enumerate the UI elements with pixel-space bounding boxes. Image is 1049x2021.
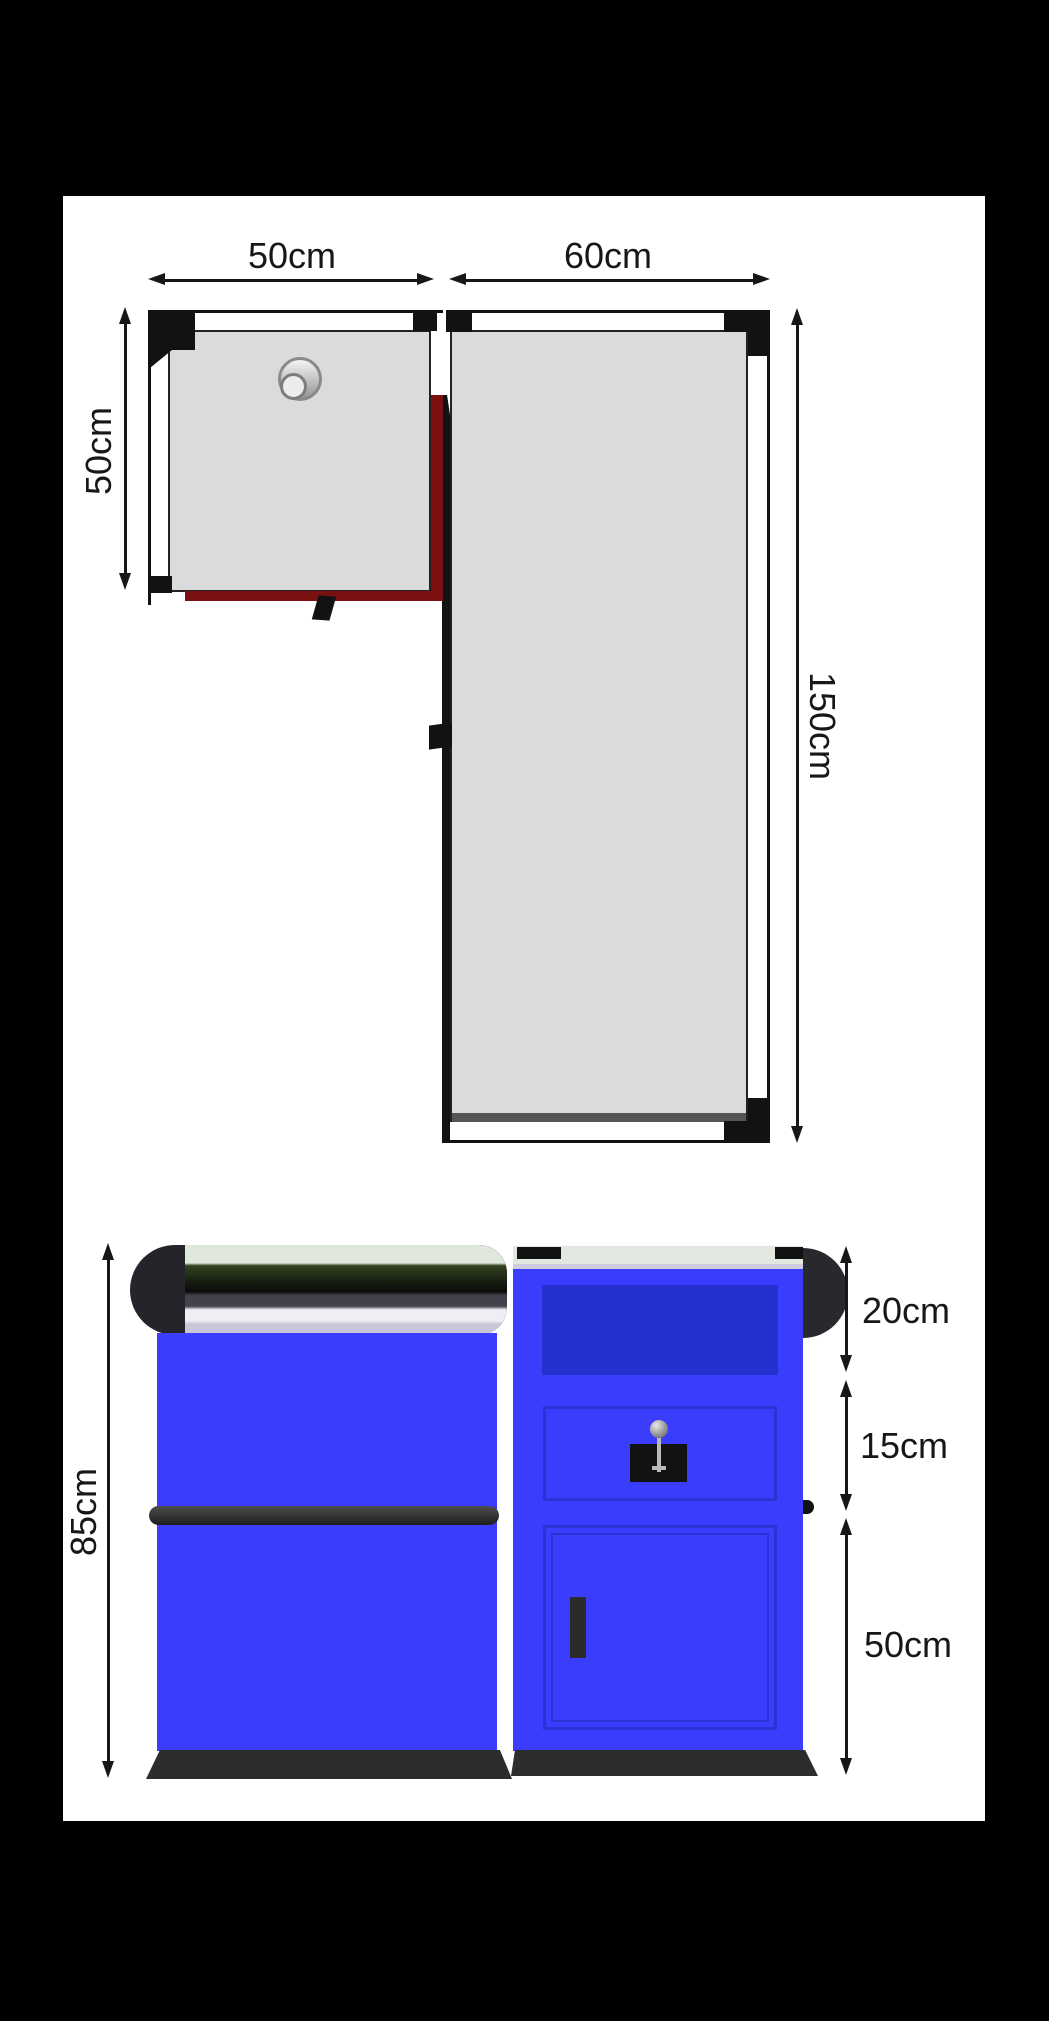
- arrowhead-icon: [840, 1355, 852, 1372]
- left-cabinet-roll-top: [130, 1245, 507, 1335]
- plan-left-red-edge-right: [431, 395, 443, 601]
- arrowhead-icon: [840, 1758, 852, 1775]
- plan-corner-bracket: [446, 311, 472, 332]
- right-cabinet-top-tab: [775, 1247, 803, 1259]
- plan-left-red-edge-bottom: [185, 591, 443, 601]
- plan-corner-bracket: [413, 311, 437, 331]
- door-handle: [570, 1597, 586, 1658]
- dim-line-20: [845, 1261, 848, 1357]
- plan-corner-bracket: [748, 331, 770, 356]
- plan-right-lid: [450, 330, 748, 1122]
- plan-corner-bracket: [748, 1098, 770, 1122]
- roll-top-stripes: [185, 1245, 507, 1335]
- dim-label-left-50cm: 50cm: [78, 407, 120, 495]
- drawer-knob-icon: [650, 1420, 668, 1438]
- dim-line-15: [845, 1395, 848, 1496]
- plan-corner-bracket: [150, 312, 195, 350]
- arrowhead-icon: [840, 1494, 852, 1511]
- plan-right-latch: [429, 722, 452, 749]
- plan-right-lid-bottom-shade: [452, 1113, 746, 1122]
- dim-line-85-left: [107, 1258, 110, 1763]
- drawer-key-bar-icon: [652, 1466, 666, 1470]
- arrowhead-icon: [119, 573, 131, 590]
- dim-label-right-150cm: 150cm: [801, 672, 843, 780]
- dim-label-85cm: 85cm: [63, 1468, 105, 1556]
- knob-inner-icon: [280, 373, 307, 400]
- left-cabinet-body: [157, 1333, 497, 1751]
- left-cabinet-handle-bar: [149, 1506, 499, 1525]
- arrowhead-icon: [791, 1126, 803, 1143]
- right-cabinet-recessed-panel: [542, 1285, 778, 1375]
- arrowhead-icon: [753, 273, 770, 285]
- dim-line-50-left: [124, 322, 127, 575]
- dim-label-15cm: 15cm: [860, 1425, 948, 1467]
- dim-label-50cm: 50cm: [864, 1624, 952, 1666]
- dim-label-20cm: 20cm: [862, 1290, 950, 1332]
- right-cabinet-top-tab: [517, 1247, 561, 1259]
- plan-corner-bracket: [724, 1121, 770, 1143]
- dim-line-150-right: [796, 323, 799, 1128]
- plan-corner-bracket: [724, 311, 770, 332]
- dim-line-50-top: [163, 279, 419, 282]
- plan-right-left-edge: [442, 395, 450, 1143]
- dim-line-50: [845, 1533, 848, 1760]
- arrowhead-icon: [417, 273, 434, 285]
- diagram-canvas: 50cm 60cm 50cm 150cm: [0, 0, 1049, 2021]
- plan-corner-bracket: [151, 576, 172, 593]
- dim-label-top-50cm: 50cm: [248, 235, 336, 277]
- dim-line-60-top: [464, 279, 755, 282]
- dim-label-top-60cm: 60cm: [564, 235, 652, 277]
- arrowhead-icon: [102, 1761, 114, 1778]
- right-cabinet-base: [511, 1750, 818, 1776]
- left-cabinet-base: [146, 1750, 512, 1779]
